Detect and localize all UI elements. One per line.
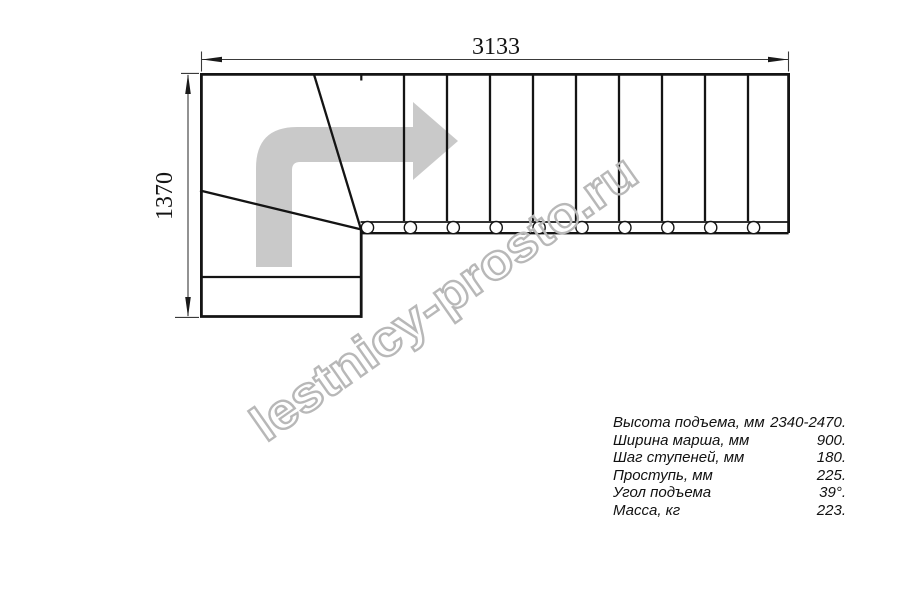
spec-value: 180. [817,449,846,467]
spec-row: Угол подъема 39°. [613,484,846,502]
baluster-icon [705,222,717,234]
spec-value: 2340-2470. [770,414,846,432]
spec-label: Ширина марша, мм [613,432,749,450]
spec-value: 39°. [819,484,846,502]
spec-value: 900. [817,432,846,450]
baluster-icon [619,222,631,234]
dim-arrow-down-icon [185,297,191,317]
watermark-text: lestnicy-prosto.ru [240,143,647,452]
top-dimension-label: 3133 [472,34,520,60]
baluster-icon [404,222,416,234]
spec-row: Шаг ступеней, мм 180. [613,449,846,467]
left-dimension-label: 1370 [152,172,178,220]
spec-table: Высота подъема, мм 2340-2470. Ширина мар… [613,414,846,520]
baluster-icon [447,222,459,234]
spec-row: Проступь, мм 225. [613,467,846,485]
spec-row: Ширина марша, мм 900. [613,432,846,450]
baluster-icon [748,222,760,234]
spec-row: Высота подъема, мм 2340-2470. [613,414,846,432]
baluster-icon [361,222,373,234]
spec-label: Масса, кг [613,502,680,520]
spec-value: 223. [817,502,846,520]
baluster-icon [662,222,674,234]
stair-plan-page: 3133 1370 lest [0,0,900,600]
dim-arrow-left-icon [202,57,222,62]
dim-arrow-up-icon [185,74,191,94]
spec-label: Проступь, мм [613,467,713,485]
dim-arrow-right-icon [768,57,788,62]
direction-arrow-icon [256,102,458,267]
spec-label: Шаг ступеней, мм [613,449,744,467]
spec-value: 225. [817,467,846,485]
spec-row: Масса, кг 223. [613,502,846,520]
spec-label: Высота подъема, мм [613,414,765,432]
spec-label: Угол подъема [613,484,711,502]
